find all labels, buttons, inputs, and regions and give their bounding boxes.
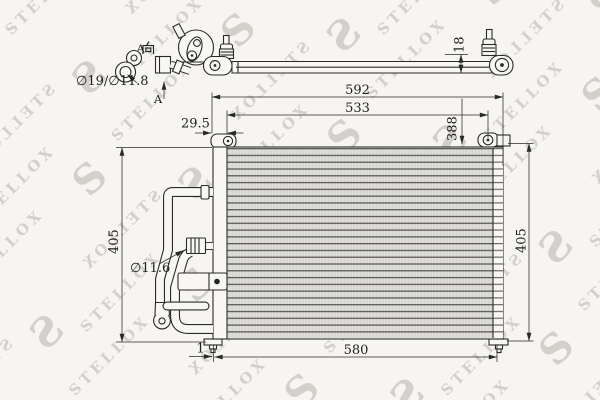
port-flange-block xyxy=(156,57,171,74)
pipe-collar xyxy=(201,186,209,200)
pipe-diameter-label: ∅11.6 xyxy=(130,261,170,276)
receiver-drier xyxy=(178,273,227,290)
dim-bracket-offset-label: 1 xyxy=(196,342,204,357)
dim-height-right-label: 405 xyxy=(515,228,530,253)
dim-depth-label: 18 xyxy=(453,36,468,53)
section-arrow-letter: A xyxy=(153,92,163,106)
dim-core-width-label: 533 xyxy=(345,101,370,116)
core-fins xyxy=(227,148,493,338)
ribbed-fitting xyxy=(187,238,206,254)
dim-core-height-label: 388 xyxy=(446,116,461,141)
dim-bottom-width-label: 580 xyxy=(344,343,369,358)
dim-left-offset-label: 29.5 xyxy=(181,117,210,132)
dim-overall-width-label: 592 xyxy=(345,83,370,98)
drawing-canvas: STELLOX S STELLOX S STELLOX xyxy=(0,0,600,400)
condenser-technical-drawing: STELLOX S STELLOX S STELLOX xyxy=(0,0,600,400)
drier-sight-dot xyxy=(214,279,220,285)
core xyxy=(213,147,503,339)
dim-height-left-label: 405 xyxy=(107,229,122,254)
port-diameters-label: ∅19/∅11.8 xyxy=(76,74,149,89)
right-header-tubes xyxy=(493,148,503,338)
